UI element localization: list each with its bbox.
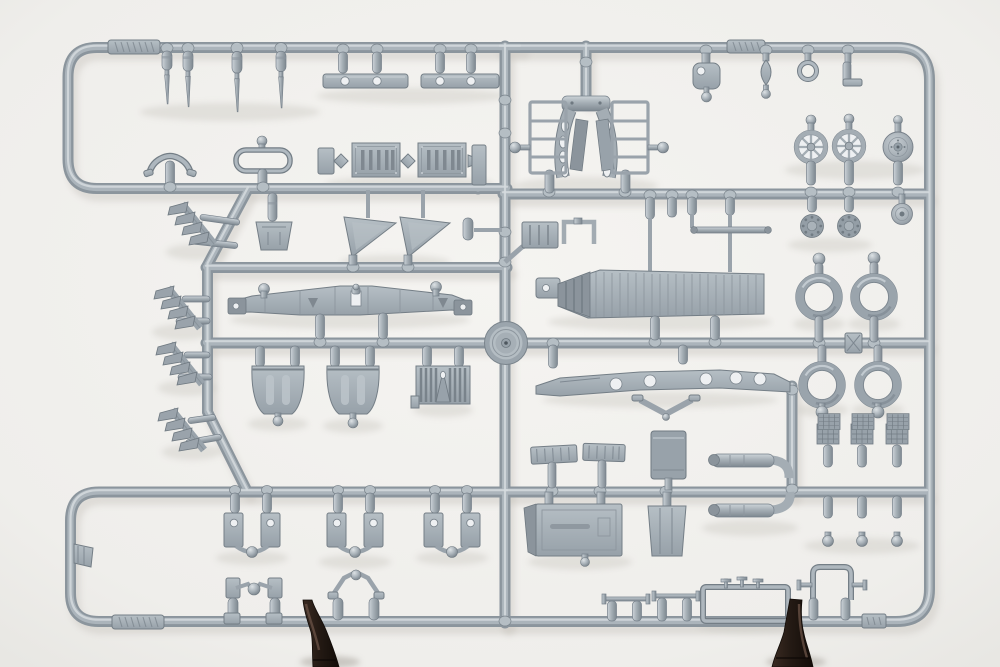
- embossed-number-tab: [862, 614, 886, 628]
- louver-panel: [418, 143, 466, 177]
- wedge-fan-part: [74, 544, 93, 567]
- ribbed-hatch-panel: [583, 443, 626, 461]
- embossed-maker-plate-top-left: [108, 40, 160, 54]
- stud-part: [548, 462, 556, 488]
- stud-part: [598, 460, 606, 488]
- louver-panel: [352, 143, 400, 177]
- moulding-hub-boss: [485, 322, 528, 365]
- stud-part: [668, 197, 677, 217]
- embossed-maker-plate-bottom: [112, 615, 164, 629]
- ribbed-hatch-panel: [531, 445, 578, 464]
- push-rod: [691, 227, 772, 234]
- sprue-photo: [0, 0, 1000, 667]
- frame-fittings: [721, 577, 763, 588]
- embossed-maker-plate-top-right: [727, 40, 765, 53]
- cross-ribbed-axle-plate: [845, 333, 862, 353]
- photo-stage: [0, 0, 1000, 667]
